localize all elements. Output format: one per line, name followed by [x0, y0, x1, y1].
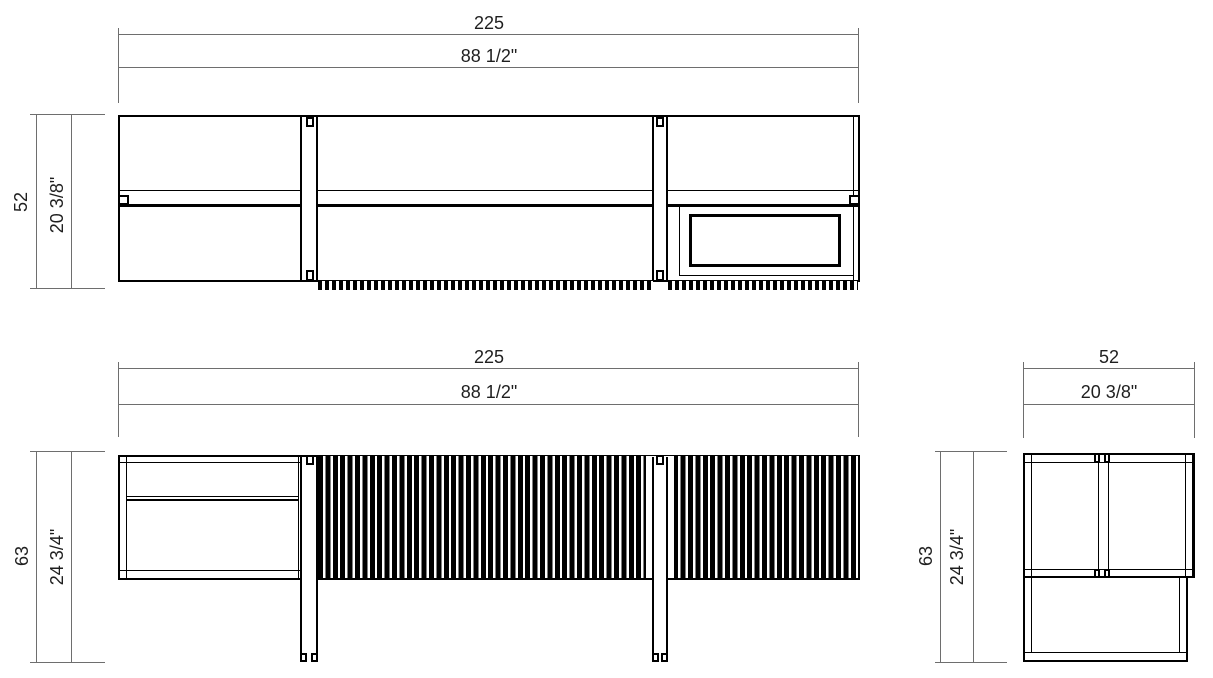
dim-line-depth-cm: [1023, 368, 1195, 369]
base-leg-inner-line: [1031, 578, 1032, 653]
leg-notch: [1094, 569, 1100, 578]
leg-notch: [1094, 453, 1100, 463]
dim-extension-line: [935, 662, 1007, 663]
side-view-carcass-outline: [1023, 453, 1195, 578]
dim-line-depth-in: [1023, 404, 1195, 405]
side-view: 52 20 3/8" 63 24 3/4": [0, 0, 1213, 678]
base-frame-outline: [1023, 578, 1188, 662]
dim-extension-line: [1023, 362, 1024, 438]
base-leg-inner-line: [1179, 578, 1180, 653]
dim-line-height-in: [973, 451, 974, 663]
slat-front-inner-line: [1185, 455, 1186, 576]
dim-extension-line: [1194, 362, 1195, 438]
dim-extension-line: [935, 451, 1007, 452]
dim-label-depth-in: 20 3/8": [1059, 382, 1159, 402]
dim-label-depth-cm: 52: [1069, 347, 1149, 367]
dim-line-height-cm: [940, 451, 941, 663]
dim-label-height-in: 24 3/4": [947, 507, 967, 607]
base-rail-inner-line: [1024, 652, 1187, 653]
leg-notch: [1104, 453, 1110, 463]
center-leg-section-line: [1098, 462, 1099, 570]
side-panel-inner-line: [1031, 455, 1032, 576]
center-leg-section-line: [1108, 462, 1109, 570]
leg-notch: [1104, 569, 1110, 578]
technical-drawing-canvas: 225 88 1/2" 52 20 3/8": [0, 0, 1213, 678]
dim-label-height-cm: 63: [916, 516, 936, 596]
